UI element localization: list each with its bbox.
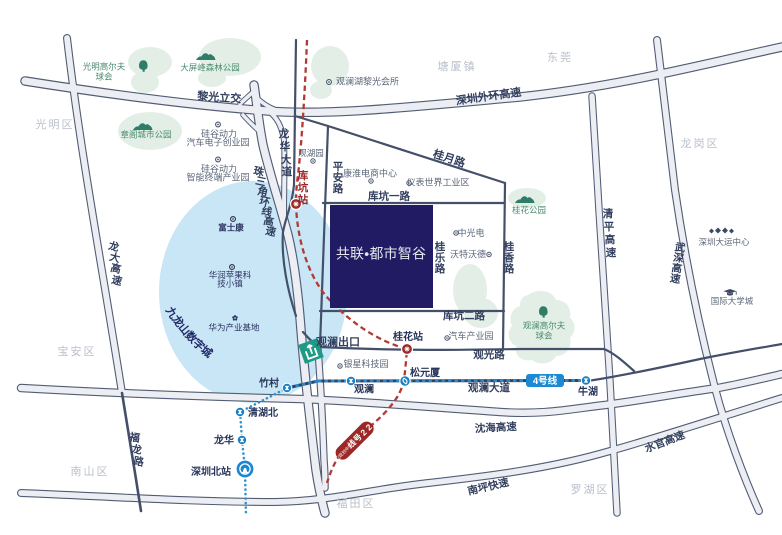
svg-text:观澜: 观澜 <box>354 383 374 396</box>
svg-text:深圳北站: 深圳北站 <box>191 465 231 478</box>
svg-text:球会: 球会 <box>535 331 553 341</box>
svg-text:松元厦: 松元厦 <box>410 366 441 379</box>
svg-text:塘厦镇: 塘厦镇 <box>438 59 477 73</box>
svg-text:龙: 龙 <box>278 127 290 140</box>
svg-text:银星科技园: 银星科技园 <box>343 358 388 369</box>
svg-text:宝安区: 宝安区 <box>58 344 97 358</box>
svg-text:速: 速 <box>606 246 617 259</box>
svg-text:库: 库 <box>298 169 309 182</box>
svg-text:华为产业基地: 华为产业基地 <box>208 323 260 333</box>
svg-text:4号线: 4号线 <box>533 375 558 387</box>
svg-text:章阁城市公园: 章阁城市公园 <box>120 130 171 140</box>
svg-text:东莞: 东莞 <box>547 51 573 64</box>
svg-text:龙华: 龙华 <box>213 434 234 447</box>
svg-text:智能终端产业园: 智能终端产业园 <box>186 172 249 183</box>
svg-text:竹村: 竹村 <box>258 377 279 390</box>
svg-text:中光电: 中光电 <box>457 227 484 238</box>
svg-text:站: 站 <box>298 193 309 206</box>
svg-text:库坑一路: 库坑一路 <box>368 190 410 203</box>
svg-text:坑: 坑 <box>298 181 309 194</box>
svg-text:观湖园: 观湖园 <box>298 148 324 158</box>
svg-text:大: 大 <box>281 153 292 166</box>
svg-text:罗湖区: 罗湖区 <box>571 483 610 496</box>
svg-text:观澜出口: 观澜出口 <box>316 335 360 349</box>
svg-text:南山区: 南山区 <box>71 465 110 478</box>
svg-text:龙岗区: 龙岗区 <box>681 137 720 150</box>
svg-text:汽车产业园: 汽车产业园 <box>448 330 493 341</box>
svg-text:路: 路 <box>333 182 344 195</box>
svg-text:华: 华 <box>280 140 291 153</box>
svg-text:光明区: 光明区 <box>36 117 75 131</box>
svg-text:大屏峰森林公园: 大屏峰森林公园 <box>180 63 240 73</box>
svg-text:福田区: 福田区 <box>337 496 376 510</box>
svg-text:平: 平 <box>604 221 615 233</box>
svg-text:路: 路 <box>504 262 515 275</box>
svg-text:高: 高 <box>605 233 616 246</box>
svg-text:路: 路 <box>435 262 446 275</box>
svg-text:仪表世界工业区: 仪表世界工业区 <box>406 177 469 188</box>
svg-text:桂花站: 桂花站 <box>392 330 423 343</box>
svg-text:库坑二路: 库坑二路 <box>443 309 485 322</box>
svg-text:沃特沃德: 沃特沃德 <box>450 249 486 260</box>
svg-text:观澜高尔夫: 观澜高尔夫 <box>523 321 566 331</box>
svg-text:共联•都市智谷: 共联•都市智谷 <box>336 246 426 262</box>
svg-text:沈海高速: 沈海高速 <box>475 420 518 435</box>
svg-text:康淮电商中心: 康淮电商中心 <box>343 168 397 179</box>
svg-text:光明高尔夫: 光明高尔夫 <box>83 62 126 72</box>
svg-text:国际大学城: 国际大学城 <box>711 296 754 306</box>
svg-text:观澜湖黎光会所: 观澜湖黎光会所 <box>336 76 399 87</box>
svg-text:深圳大运中心: 深圳大运中心 <box>698 237 750 247</box>
svg-text:清: 清 <box>603 207 614 220</box>
svg-text:观光路: 观光路 <box>473 348 505 361</box>
svg-text:桂花公园: 桂花公园 <box>512 205 546 215</box>
svg-text:球会: 球会 <box>95 72 113 82</box>
svg-text:牛湖: 牛湖 <box>578 385 598 398</box>
svg-text:清湖北: 清湖北 <box>248 406 278 419</box>
svg-text:道: 道 <box>282 165 293 178</box>
svg-text:观澜大道: 观澜大道 <box>468 381 510 394</box>
svg-text:汽车电子创业园: 汽车电子创业园 <box>186 137 249 148</box>
svg-text:技小镇: 技小镇 <box>217 279 243 289</box>
svg-text:富士康: 富士康 <box>218 223 244 233</box>
